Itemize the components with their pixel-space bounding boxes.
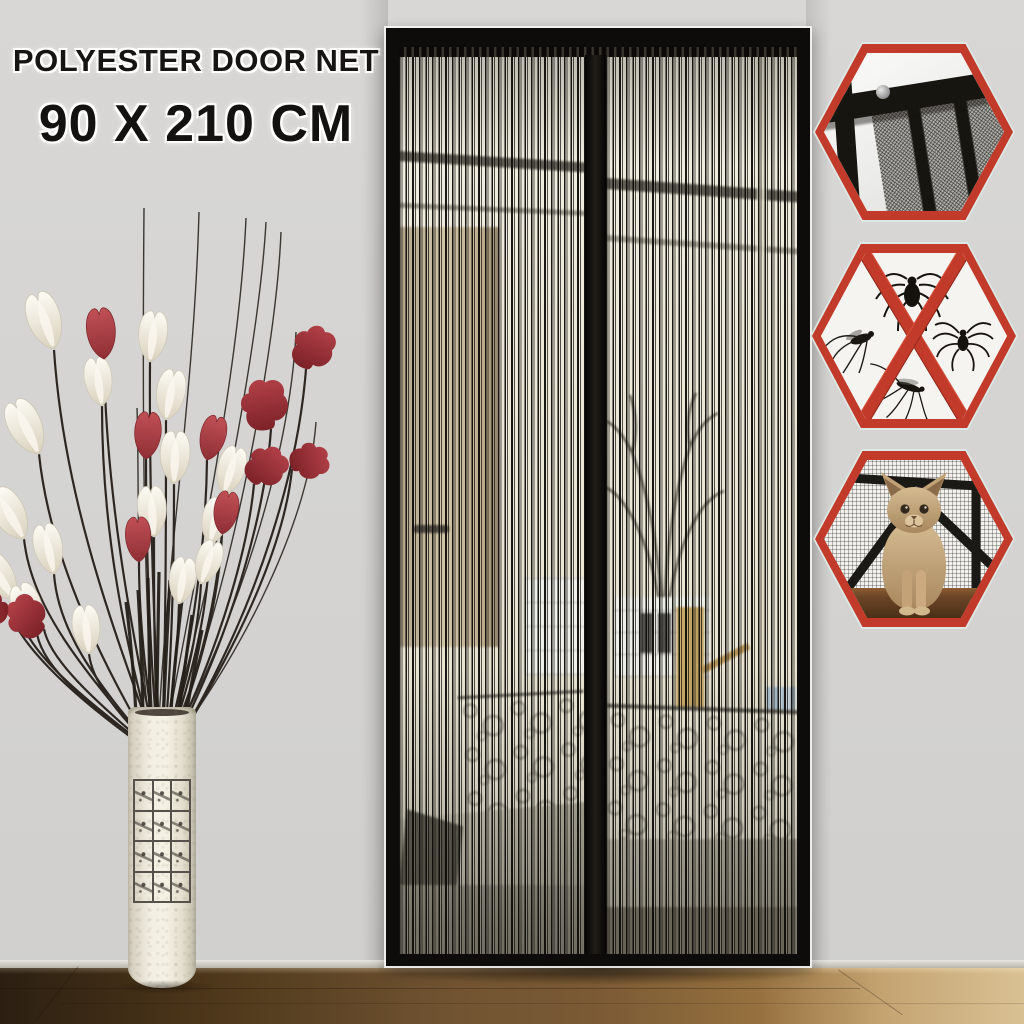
doodle-icon — [153, 811, 172, 842]
flower-bouquet-illustration — [0, 200, 350, 760]
floor-plank-seam — [60, 1003, 1024, 1004]
screw-icon — [876, 85, 890, 99]
doodle-icon — [171, 841, 190, 872]
doodle-icon — [153, 780, 172, 811]
magnetic-closure-strip — [585, 55, 606, 954]
product-size: 90 X 210 CM — [0, 98, 392, 150]
product-image: POLYESTER DOOR NET 90 X 210 CM — [0, 0, 1024, 1024]
product-title: POLYESTER DOOR NET 90 X 210 CM — [0, 44, 392, 150]
doodle-icon — [134, 872, 153, 903]
doodle-icon — [171, 811, 190, 842]
white-vase — [128, 707, 196, 988]
doodle-icon — [134, 811, 153, 842]
mesh-panel-right — [606, 57, 797, 954]
mesh-panel-left — [399, 57, 585, 954]
doodle-icon — [171, 872, 190, 903]
mesh-stripes-overlay — [606, 57, 797, 954]
mesh-stripes-overlay — [399, 57, 585, 954]
mesh-door-curtain — [386, 28, 810, 966]
product-name: POLYESTER DOOR NET — [0, 44, 392, 78]
doodle-icon — [134, 841, 153, 872]
doodle-icon — [153, 841, 172, 872]
doodle-icon — [171, 780, 190, 811]
cat-illustration — [881, 472, 947, 616]
doodle-icon — [153, 872, 172, 903]
vase-label-grid — [133, 779, 191, 903]
doodle-icon — [134, 780, 153, 811]
vase-shadow — [112, 980, 216, 994]
spider-icon — [933, 323, 993, 371]
mesh-strip-bar — [905, 97, 937, 211]
